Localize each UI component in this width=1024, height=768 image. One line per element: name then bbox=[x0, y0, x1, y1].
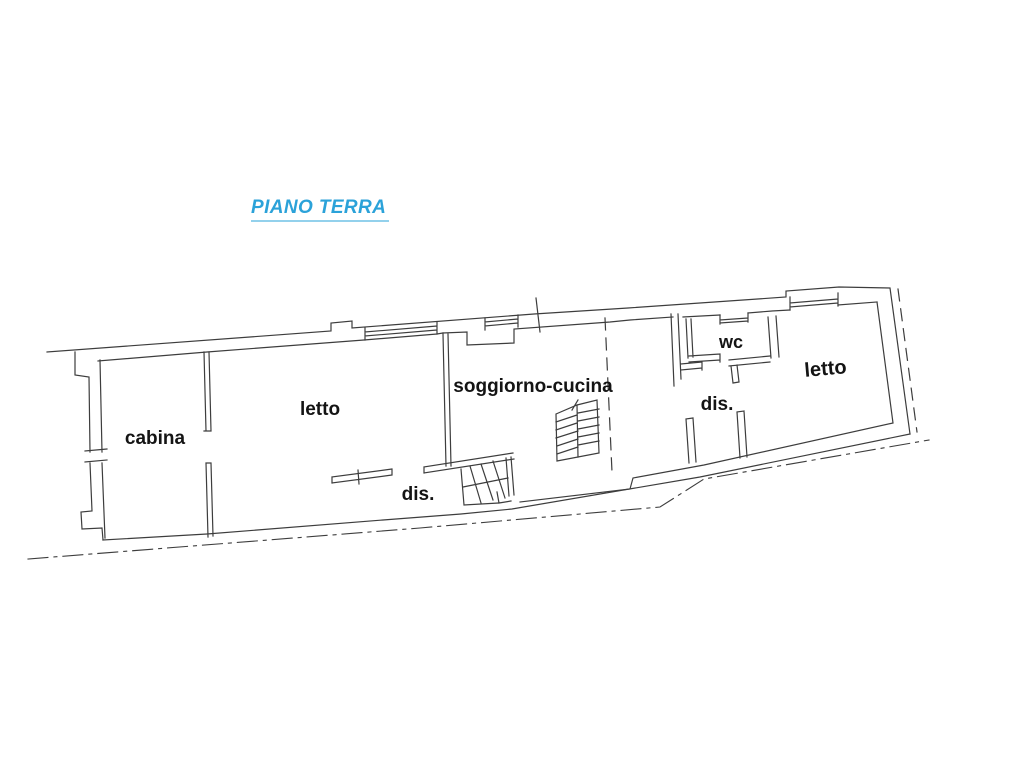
partition-stairwell-top bbox=[424, 453, 514, 473]
left-wall-door-ticks bbox=[85, 449, 107, 462]
window-wc bbox=[720, 313, 748, 324]
partition-cabina-letto-upper bbox=[204, 352, 211, 431]
wall-top-outer-and-right bbox=[47, 287, 910, 434]
window-letto-right bbox=[790, 293, 838, 310]
wall-left-outer bbox=[75, 352, 103, 540]
dis-right-wall-stubs bbox=[686, 411, 747, 463]
staircase-entrance bbox=[461, 457, 514, 505]
room-label-dis-right: dis. bbox=[701, 394, 734, 415]
dashed-boundary-right bbox=[898, 289, 917, 432]
floor-plan-drawing: cabina letto soggiorno-cucina dis. wc di… bbox=[0, 0, 1024, 768]
wall-top-inner-left bbox=[98, 333, 443, 361]
partition-letto-soggiorno bbox=[443, 334, 451, 466]
room-label-soggiorno-cucina: soggiorno-cucina bbox=[453, 376, 613, 397]
dashed-lines bbox=[28, 289, 929, 559]
partition-letto-dis bbox=[332, 469, 392, 484]
outer-walls bbox=[47, 287, 910, 540]
staircase-soggiorno bbox=[556, 400, 599, 461]
windows bbox=[365, 293, 838, 340]
entry-stairs-edges bbox=[461, 457, 514, 505]
wall-top-inner-middle bbox=[443, 317, 673, 345]
floorplan-page: PIANO TERRA bbox=[0, 0, 1024, 768]
room-label-dis-center: dis. bbox=[402, 484, 435, 505]
entry-stairs-treads bbox=[463, 461, 508, 503]
partition-cabina-letto-lower bbox=[206, 463, 213, 537]
room-label-wc: wc bbox=[718, 332, 743, 352]
room-label-cabina: cabina bbox=[125, 428, 186, 449]
wall-top-inner-right bbox=[683, 302, 877, 317]
room-label-letto-right: letto bbox=[803, 356, 847, 382]
wall-bottom bbox=[103, 434, 910, 540]
room-label-letto-left: letto bbox=[300, 399, 340, 420]
